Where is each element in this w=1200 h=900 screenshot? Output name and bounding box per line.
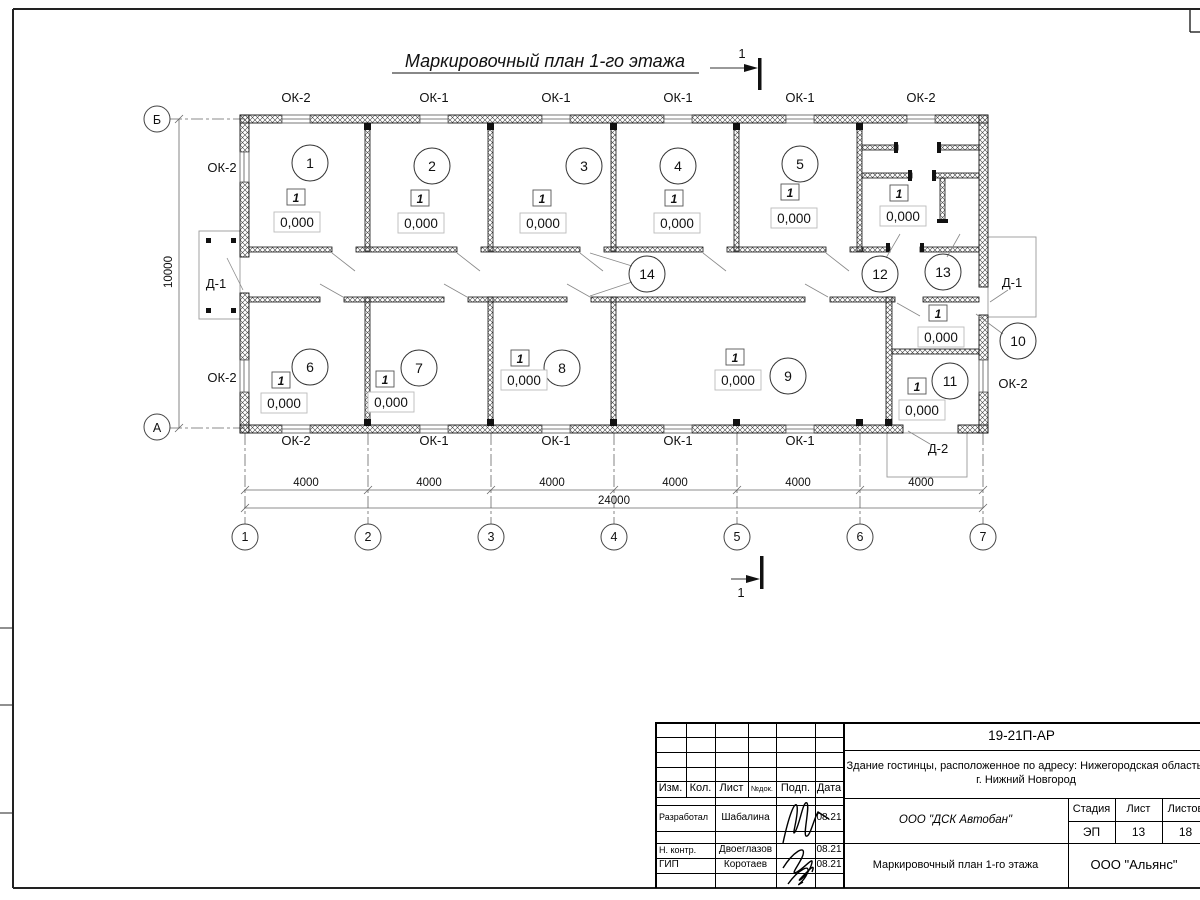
tb-col-list: Лист [715, 781, 748, 797]
title-block: Изм. Кол. Лист №док. Подп. Дата Разработ… [0, 0, 1200, 900]
tb-col-podp: Подп. [776, 781, 815, 797]
tb-line [655, 752, 843, 753]
tb-date-developer: 08.21 [815, 805, 843, 831]
tb-name-gip: Коротаев [716, 858, 775, 873]
tb-col-data: Дата [815, 781, 843, 797]
tb-line [655, 767, 843, 768]
tb-sheets-value: 18 [1162, 821, 1200, 843]
tb-sheet-title: Маркировочный план 1-го этажа [843, 843, 1068, 888]
tb-line [655, 873, 843, 874]
tb-date-ncontrol: 08.21 [815, 843, 843, 858]
tb-name-developer: Шабалина [716, 805, 775, 831]
tb-role-developer: Разработал [656, 805, 714, 831]
tb-line [655, 831, 843, 832]
tb-sheets-label: Листов [1162, 798, 1200, 821]
tb-client: ООО "Альянс" [1068, 843, 1200, 888]
tb-doc-code: 19-21П-АР [843, 722, 1200, 750]
tb-col-izm: Изм. [655, 781, 686, 797]
tb-stage-label: Стадия [1068, 798, 1115, 821]
tb-date-gip: 08.21 [815, 858, 843, 873]
tb-col-ndok: №док. [748, 781, 776, 797]
tb-sheet-label: Лист [1115, 798, 1162, 821]
tb-line [655, 737, 843, 738]
tb-col-kol: Кол. [686, 781, 715, 797]
tb-role-ncontrol: Н. контр. [656, 843, 714, 858]
tb-sheet-value: 13 [1115, 821, 1162, 843]
tb-stage-value: ЭП [1068, 821, 1115, 843]
tb-name-ncontrol: Двоеглазов [716, 843, 775, 858]
tb-line [655, 797, 843, 798]
drawing-sheet: Маркировочный план 1-го этажа [0, 0, 1200, 900]
tb-contractor: ООО "ДСК Автобан" [843, 798, 1068, 843]
tb-role-gip: ГИП [656, 858, 714, 873]
tb-project-name: Здание гостинцы, расположенное по адресу… [845, 750, 1200, 798]
